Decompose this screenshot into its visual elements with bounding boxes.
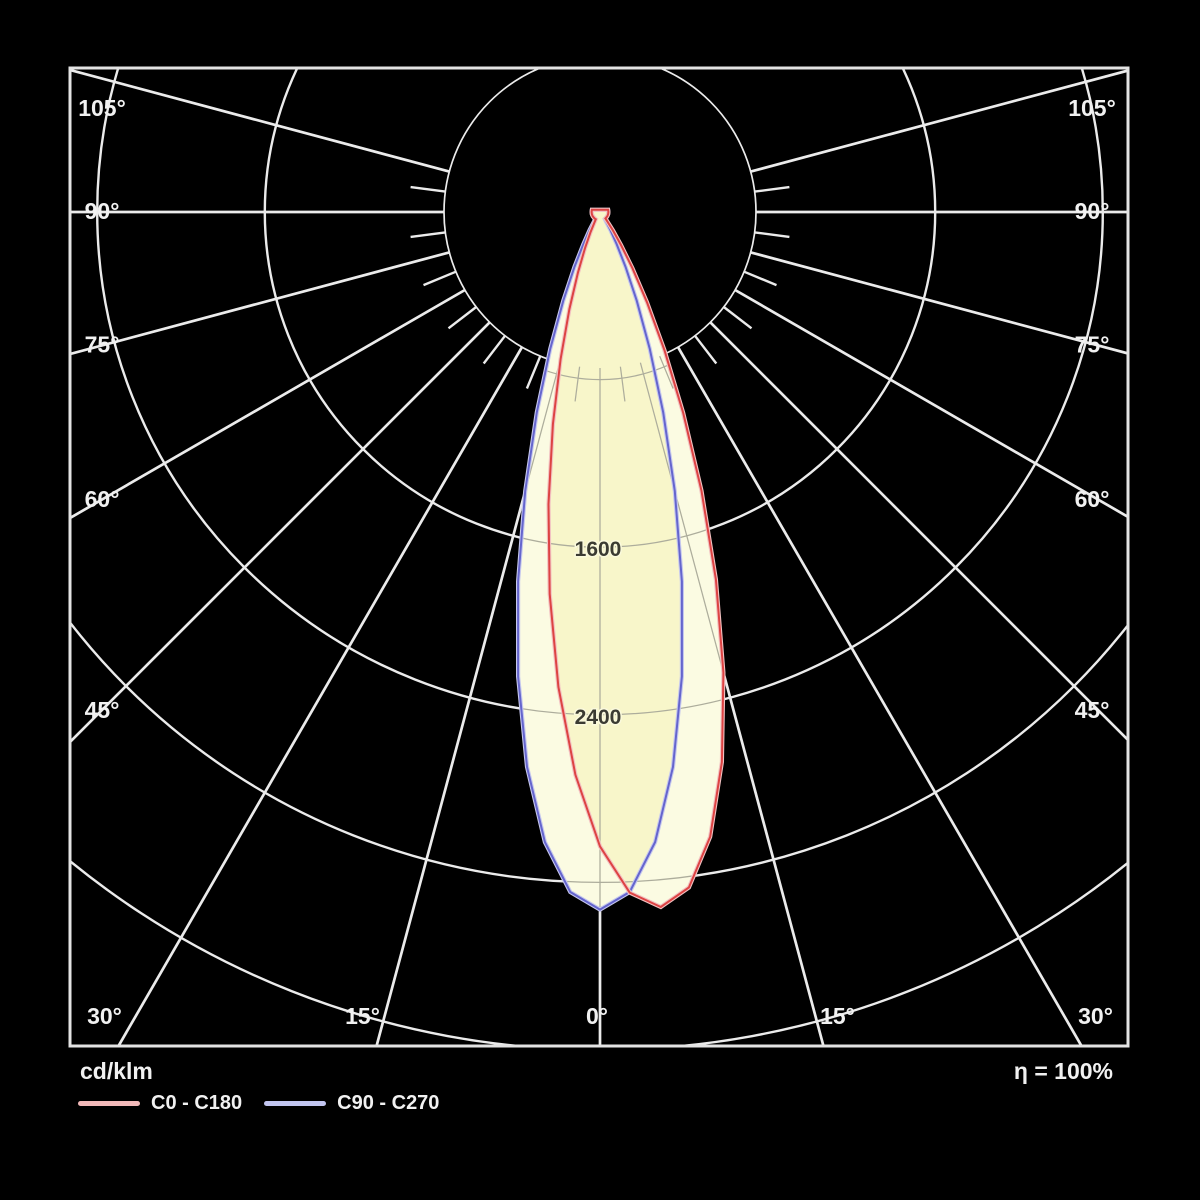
grid-spoke — [0, 0, 449, 172]
c90-line-swatch — [264, 1101, 326, 1106]
grid-spoke — [751, 0, 1200, 172]
c0-line-swatch — [78, 1101, 140, 1106]
grid-spoke — [0, 0, 449, 172]
efficiency-label: η = 100% — [1014, 1058, 1113, 1085]
angle-label-right-105: 105° — [1068, 95, 1116, 121]
legend-item-c0: C0 - C180 — [78, 1092, 242, 1115]
grid-tick — [449, 307, 477, 328]
grid-tick — [755, 232, 790, 237]
grid-tick — [744, 272, 776, 285]
grid-spoke — [735, 290, 1200, 912]
angle-label-left-75: 75° — [85, 332, 120, 358]
angle-label-right-60: 60° — [1075, 486, 1110, 512]
unit-label: cd/klm — [80, 1058, 153, 1085]
angle-label-left-60: 60° — [85, 486, 120, 512]
grid-tick — [411, 187, 446, 192]
angle-label-right-90: 90° — [1075, 198, 1110, 224]
angle-label-left-15: 15° — [345, 1003, 380, 1029]
grid-spoke — [751, 252, 1200, 574]
polar-intensity-chart: 0°15°15°30°30°45°45°60°60°75°75°90°90°10… — [0, 0, 1200, 1200]
legend-header: cd/klm η = 100% — [0, 1056, 1200, 1086]
grid-spoke — [0, 252, 449, 574]
grid-tick — [755, 187, 790, 192]
angle-label-left-45: 45° — [85, 697, 120, 723]
angle-label-right-30: 30° — [1078, 1003, 1113, 1029]
grid-tick — [695, 336, 716, 364]
angle-label-left-90: 90° — [85, 198, 120, 224]
grid-spoke — [0, 252, 449, 574]
angle-label-0: 0° — [586, 1003, 608, 1029]
angle-label-left-30: 30° — [87, 1003, 122, 1029]
c90-series-label: C90 - C270 — [337, 1092, 439, 1115]
grid-tick — [484, 336, 505, 364]
legend-series-row: C0 - C180 C90 - C270 — [78, 1092, 461, 1115]
grid-spoke — [735, 290, 1200, 912]
legend-item-c90: C90 - C270 — [264, 1092, 439, 1115]
grid-tick — [527, 356, 540, 388]
angle-label-right-15: 15° — [820, 1003, 855, 1029]
ring-value-label-2400: 2400 — [575, 706, 622, 729]
legend: cd/klm η = 100% C0 - C180 C90 - C270 — [0, 1056, 1200, 1086]
photometric-diagram: 0°15°15°30°30°45°45°60°60°75°75°90°90°10… — [0, 0, 1200, 1200]
angle-label-right-45: 45° — [1075, 697, 1110, 723]
grid-tick — [724, 307, 752, 328]
grid-spoke — [751, 252, 1200, 574]
angle-label-left-105: 105° — [78, 95, 126, 121]
grid-tick — [424, 272, 456, 285]
angle-label-right-75: 75° — [1075, 332, 1110, 358]
c0-series-label: C0 - C180 — [151, 1092, 242, 1115]
grid-spoke — [751, 0, 1200, 172]
grid-tick — [411, 232, 446, 237]
ring-value-label-1600: 1600 — [575, 538, 622, 561]
